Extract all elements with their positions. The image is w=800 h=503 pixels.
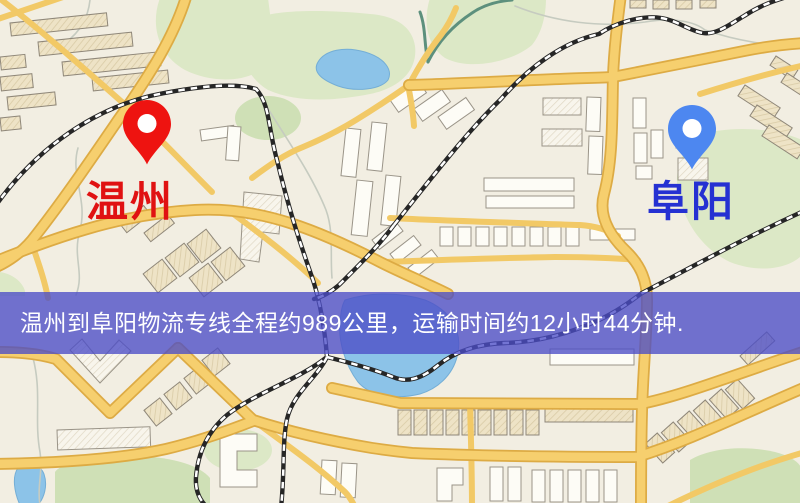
map-canvas[interactable] — [0, 0, 800, 503]
route-info-banner: 温州到阜阳物流专线全程约989公里，运输时间约12小时44分钟. — [0, 292, 800, 354]
destination-city-label: 阜阳 — [647, 181, 735, 223]
destination-pin-icon[interactable] — [667, 104, 717, 170]
destination-pin-hole — [683, 119, 702, 138]
route-info-text: 温州到阜阳物流专线全程约989公里，运输时间约12小时44分钟. — [0, 292, 800, 354]
origin-pin-icon[interactable] — [122, 99, 172, 165]
origin-city-label: 温州 — [86, 181, 174, 223]
map-screenshot: 温州 阜阳 温州到阜阳物流专线全程约989公里，运输时间约12小时44分钟. — [0, 0, 800, 503]
origin-pin-hole — [138, 114, 157, 133]
